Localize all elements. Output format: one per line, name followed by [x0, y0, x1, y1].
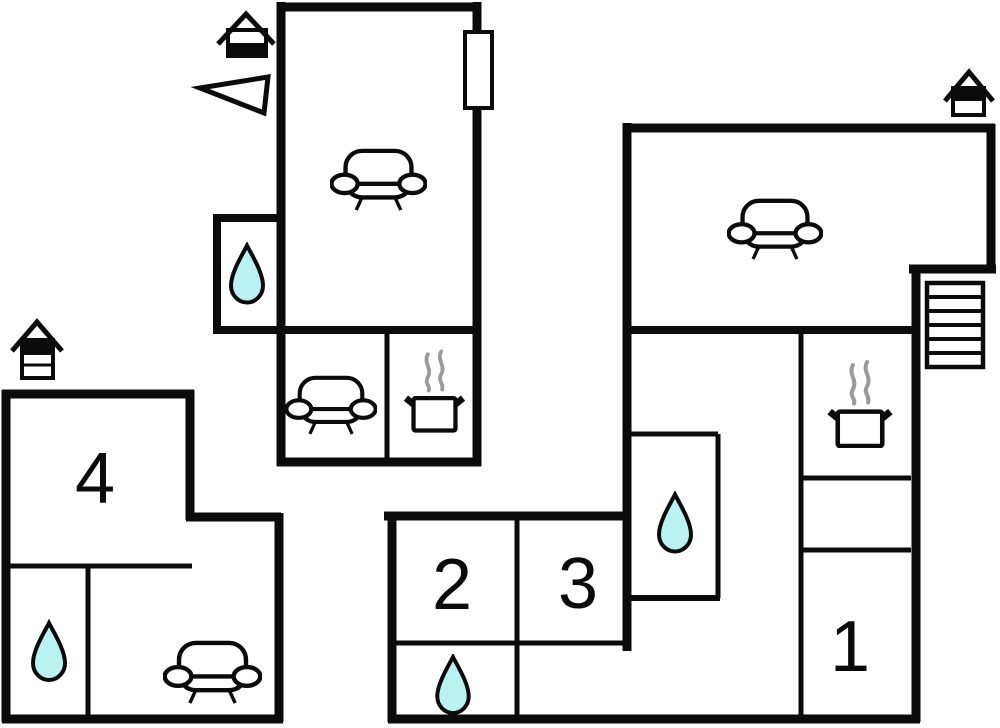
floor-plan-canvas: 1 2 3 4 [0, 0, 1000, 728]
floor-plan: 1 2 3 4 [0, 0, 1000, 728]
room-label-1: 1 [830, 607, 870, 687]
stairs-icon [927, 283, 983, 367]
room-label-2: 2 [432, 545, 472, 625]
room-label-3: 3 [558, 544, 598, 624]
room-label-4: 4 [75, 439, 115, 519]
door-marker [465, 32, 492, 108]
